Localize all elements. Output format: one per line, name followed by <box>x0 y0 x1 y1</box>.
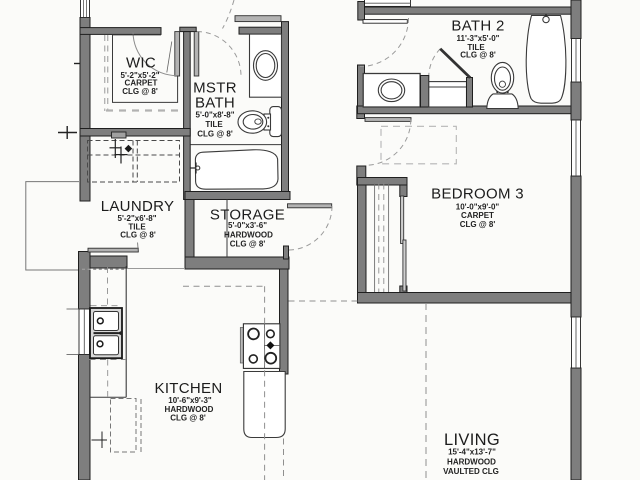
svg-text:5'-0"x8'-8": 5'-0"x8'-8" <box>196 110 235 119</box>
svg-text:TILE: TILE <box>205 120 223 129</box>
svg-text:CLG @ 8': CLG @ 8' <box>170 413 206 422</box>
svg-text:CLG @ 8': CLG @ 8' <box>460 220 496 229</box>
svg-text:WIC: WIC <box>126 55 156 72</box>
svg-text:BATH 2: BATH 2 <box>451 18 504 35</box>
svg-text:CLG @ 8': CLG @ 8' <box>120 230 156 239</box>
svg-text:BEDROOM 3: BEDROOM 3 <box>431 186 524 203</box>
svg-text:BATH: BATH <box>195 95 235 112</box>
svg-text:HARDWOOD: HARDWOOD <box>447 457 496 466</box>
svg-text:HARDWOOD: HARDWOOD <box>224 230 273 239</box>
svg-text:VAULTED CLG: VAULTED CLG <box>443 467 499 476</box>
svg-text:11'-3"x5'-0": 11'-3"x5'-0" <box>457 34 500 43</box>
svg-text:KITCHEN: KITCHEN <box>155 380 223 397</box>
svg-text:CLG @ 8': CLG @ 8' <box>197 129 233 138</box>
svg-text:10'-6"x9'-3": 10'-6"x9'-3" <box>168 396 212 405</box>
svg-text:5'-0"x3'-6": 5'-0"x3'-6" <box>228 221 267 230</box>
svg-text:CARPET: CARPET <box>461 211 494 220</box>
svg-text:15'-4"x13'-7": 15'-4"x13'-7" <box>448 447 496 456</box>
svg-text:CLG @ 8': CLG @ 8' <box>230 239 266 248</box>
svg-text:CLG @ 8': CLG @ 8' <box>460 50 496 59</box>
svg-text:CLG @ 8': CLG @ 8' <box>122 87 158 96</box>
svg-text:LAUNDRY: LAUNDRY <box>101 198 175 215</box>
